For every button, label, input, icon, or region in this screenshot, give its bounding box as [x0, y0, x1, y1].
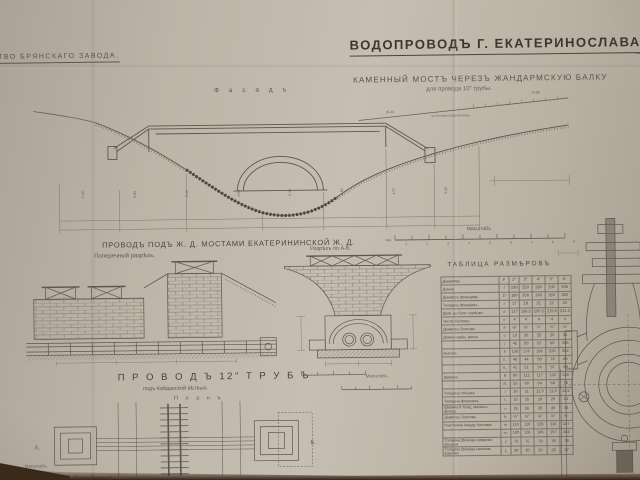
- table-cell: 50: [520, 340, 533, 348]
- repeat-item: 6: [510, 241, 512, 245]
- table-cell: 60: [520, 380, 533, 388]
- table-cell: 20: [521, 446, 534, 455]
- table-cell: 64: [533, 380, 546, 388]
- table-cell: 4: [532, 316, 545, 324]
- table-cell: d: [499, 308, 510, 316]
- table-cell: D: [499, 292, 510, 300]
- table-cell: 75: [521, 437, 534, 446]
- plan12-marker-a: А.: [34, 445, 40, 451]
- table-cell: 20: [511, 446, 521, 455]
- main-scale-unit: саж.: [385, 238, 392, 242]
- table-cell: 51: [520, 364, 533, 372]
- table-cell: f₁: [501, 446, 512, 455]
- table-cell: 75: [511, 437, 521, 446]
- table-cell: 4: [510, 316, 520, 324]
- table-cell: 11.3: [533, 388, 546, 396]
- table-cell: 54: [533, 364, 546, 372]
- repeat-item: 8: [552, 240, 554, 244]
- table-cell: n: [499, 316, 510, 324]
- table-cell: 117: [533, 372, 546, 380]
- table-cell: t: [499, 300, 510, 308]
- plan12-heading: П Р О В О Д Ъ 12" Т Р У Б Ъ: [118, 370, 311, 383]
- table-cell: 174: [520, 348, 533, 356]
- elevation-value-right: 14.85: [531, 90, 540, 94]
- table-header-cell: Р: [499, 276, 510, 284]
- table-cell: 25: [511, 404, 521, 413]
- table-cell: a: [499, 332, 510, 340]
- table-cell: 4: [519, 316, 532, 324]
- table-cell: ½″: [521, 413, 534, 421]
- repeat-item: 5.12: [288, 189, 292, 196]
- repeat-item: 5: [489, 241, 491, 245]
- table-cell: 18: [533, 396, 546, 404]
- table-cell: m: [500, 421, 511, 429]
- main-scale-bar: Масштабъ саж. 123456789: [385, 225, 573, 246]
- table-cell: 58: [533, 356, 546, 364]
- company-title: СТВО БРЯНСКАГО ЗАВОДА.: [0, 52, 120, 64]
- repeat-item: 6.40: [185, 190, 189, 197]
- table-cell: b: [499, 324, 510, 332]
- table-cell: 166.5: [519, 308, 532, 316]
- table-cell: 112: [520, 372, 533, 380]
- table-cell: e: [500, 404, 511, 413]
- drawing-sheet: СТВО БРЯНСКАГО ЗАВОДА. ВОДОПРОВОДЪ Г. ЕК…: [0, 0, 640, 480]
- repeat-item: 3: [447, 241, 449, 245]
- valve-detail-drawing: [556, 218, 640, 477]
- table-cell: 41: [510, 364, 520, 372]
- table-header-cell: 4″: [532, 276, 545, 284]
- table-cell: 196: [533, 348, 546, 356]
- table-cell: 11: [520, 388, 533, 396]
- table-cell: 28: [533, 404, 546, 413]
- table-cell: 136: [521, 429, 534, 437]
- table-cell: 18: [519, 300, 532, 308]
- repeat-item: 0.61: [236, 189, 240, 196]
- section-ab-drawing: [272, 251, 443, 373]
- table-cell: b₁: [500, 413, 511, 421]
- drawing-subtitle: КАМЕННЫЙ МОСТЪ ЧЕРЕЗЪ ЖАНДАРМСКУЮ БАЛКУ: [353, 72, 608, 84]
- bottomleft-scale-ruler: [25, 474, 111, 480]
- table-cell: Толщина фланца сальник. коробки: [443, 446, 501, 456]
- repeat-item: 1.07: [392, 188, 396, 195]
- table-cell: B: [500, 372, 511, 380]
- table-cell: 190.2: [532, 308, 545, 316]
- table-cell: 16: [520, 396, 533, 404]
- table-cell: 76: [534, 437, 547, 446]
- table-cell: c: [499, 340, 510, 348]
- table-cell: 55: [533, 340, 546, 348]
- table-header-cell: 3″: [519, 276, 532, 284]
- facade-elevation-drawing: 14.85 16.40 уг. Елисаветградской улицы: [33, 85, 570, 242]
- table-cell: s₁: [500, 396, 511, 404]
- table-cell: 180: [509, 292, 519, 300]
- ab-scale-ruler: [342, 384, 412, 392]
- dimension-table-body: Длинаl230250280290306Діаметръ фланцевъD1…: [441, 283, 573, 455]
- table-cell: 250: [519, 284, 532, 292]
- repeat-item: 4.48: [81, 191, 85, 198]
- table-cell: 26: [520, 404, 533, 413]
- table-cell: 44: [520, 356, 533, 364]
- table-cell: 126: [534, 421, 547, 429]
- table-title: ТАБЛИЦА РАЗМѢРОВЪ: [447, 260, 551, 268]
- plan12-marker-b: Б.: [310, 440, 316, 446]
- table-cell: 80: [510, 372, 520, 380]
- repeat-item: 2.84: [340, 188, 344, 195]
- cross-section-drawing: [25, 259, 276, 374]
- table-cell: 280: [532, 284, 545, 292]
- table-header-cell: 2″: [509, 276, 519, 284]
- table-cell: ⅝″: [519, 324, 532, 332]
- table-cell: 21: [532, 300, 545, 308]
- table-cell: ⅝″: [510, 324, 520, 332]
- table-cell: 15: [511, 396, 521, 404]
- table-cell: 230: [509, 284, 519, 292]
- table-cell: 40: [510, 356, 520, 364]
- table-cell: 25: [533, 332, 546, 340]
- table-cell: 110: [521, 421, 534, 429]
- table-cell: h: [499, 348, 510, 356]
- table-cell: l: [499, 284, 510, 292]
- repeat-item: 3.20: [444, 187, 448, 194]
- table-cell: f: [500, 437, 511, 446]
- plan12-subheading: подъ Кайдакской вѣтвью.: [143, 385, 208, 392]
- bottomleft-scale-label: Масштабъ.: [25, 463, 115, 469]
- repeat-item: 2: [426, 242, 428, 246]
- table-cell: 110: [511, 421, 521, 429]
- dimension-table: ДіаметръР2″3″4″5″6″ Длинаl23025028029030…: [440, 275, 573, 456]
- elevation-value-mid: 16.40: [385, 110, 394, 114]
- plan12-heading-scale-ruler: [302, 369, 366, 378]
- repeat-item: 4: [468, 241, 470, 245]
- table-cell: 10: [511, 388, 521, 396]
- table-cell: 127: [510, 308, 520, 316]
- table-cell: 45: [510, 340, 520, 348]
- table-cell: 240: [532, 292, 545, 300]
- table-cell: ½″: [511, 413, 521, 421]
- table-cell: 55: [510, 380, 520, 388]
- table-cell: 20: [534, 446, 547, 455]
- table-cell: 17: [509, 300, 519, 308]
- table-cell: ⅝″: [534, 413, 547, 421]
- table-row: Толщина фланца сальник. коробкиf₁2020202…: [443, 445, 573, 456]
- repeat-item: 7: [531, 240, 533, 244]
- street-note: уг. Елисаветградской улицы: [431, 113, 470, 117]
- table-cell: ¾″: [532, 324, 545, 332]
- cross-section-label: Поперечный разрѣзъ.: [94, 253, 155, 260]
- photo-of-drawing: СТВО БРЯНСКАГО ЗАВОДА. ВОДОПРОВОДЪ Г. ЕК…: [0, 0, 640, 480]
- repeat-item: 1: [405, 242, 407, 246]
- table-cell: 146: [534, 429, 547, 437]
- table-cell: s: [500, 388, 511, 396]
- table-cell: 139: [510, 348, 520, 356]
- table-cell: h₂: [500, 364, 511, 372]
- table-cell: h₁: [499, 356, 510, 364]
- table-cell: 130: [511, 429, 521, 437]
- table-cell: B₁: [500, 380, 511, 388]
- table-cell: 19: [510, 332, 520, 340]
- table-cell: m₁: [500, 429, 511, 437]
- table-cell: 20: [520, 332, 533, 340]
- repeat-item: 0.85: [133, 191, 137, 198]
- bottomleft-scale-bar: Масштабъ.: [25, 463, 115, 480]
- page-title: ВОДОПРОВОДЪ Г. ЕКАТЕРИНОСЛАВА.: [350, 34, 640, 57]
- table-cell: 200: [519, 292, 532, 300]
